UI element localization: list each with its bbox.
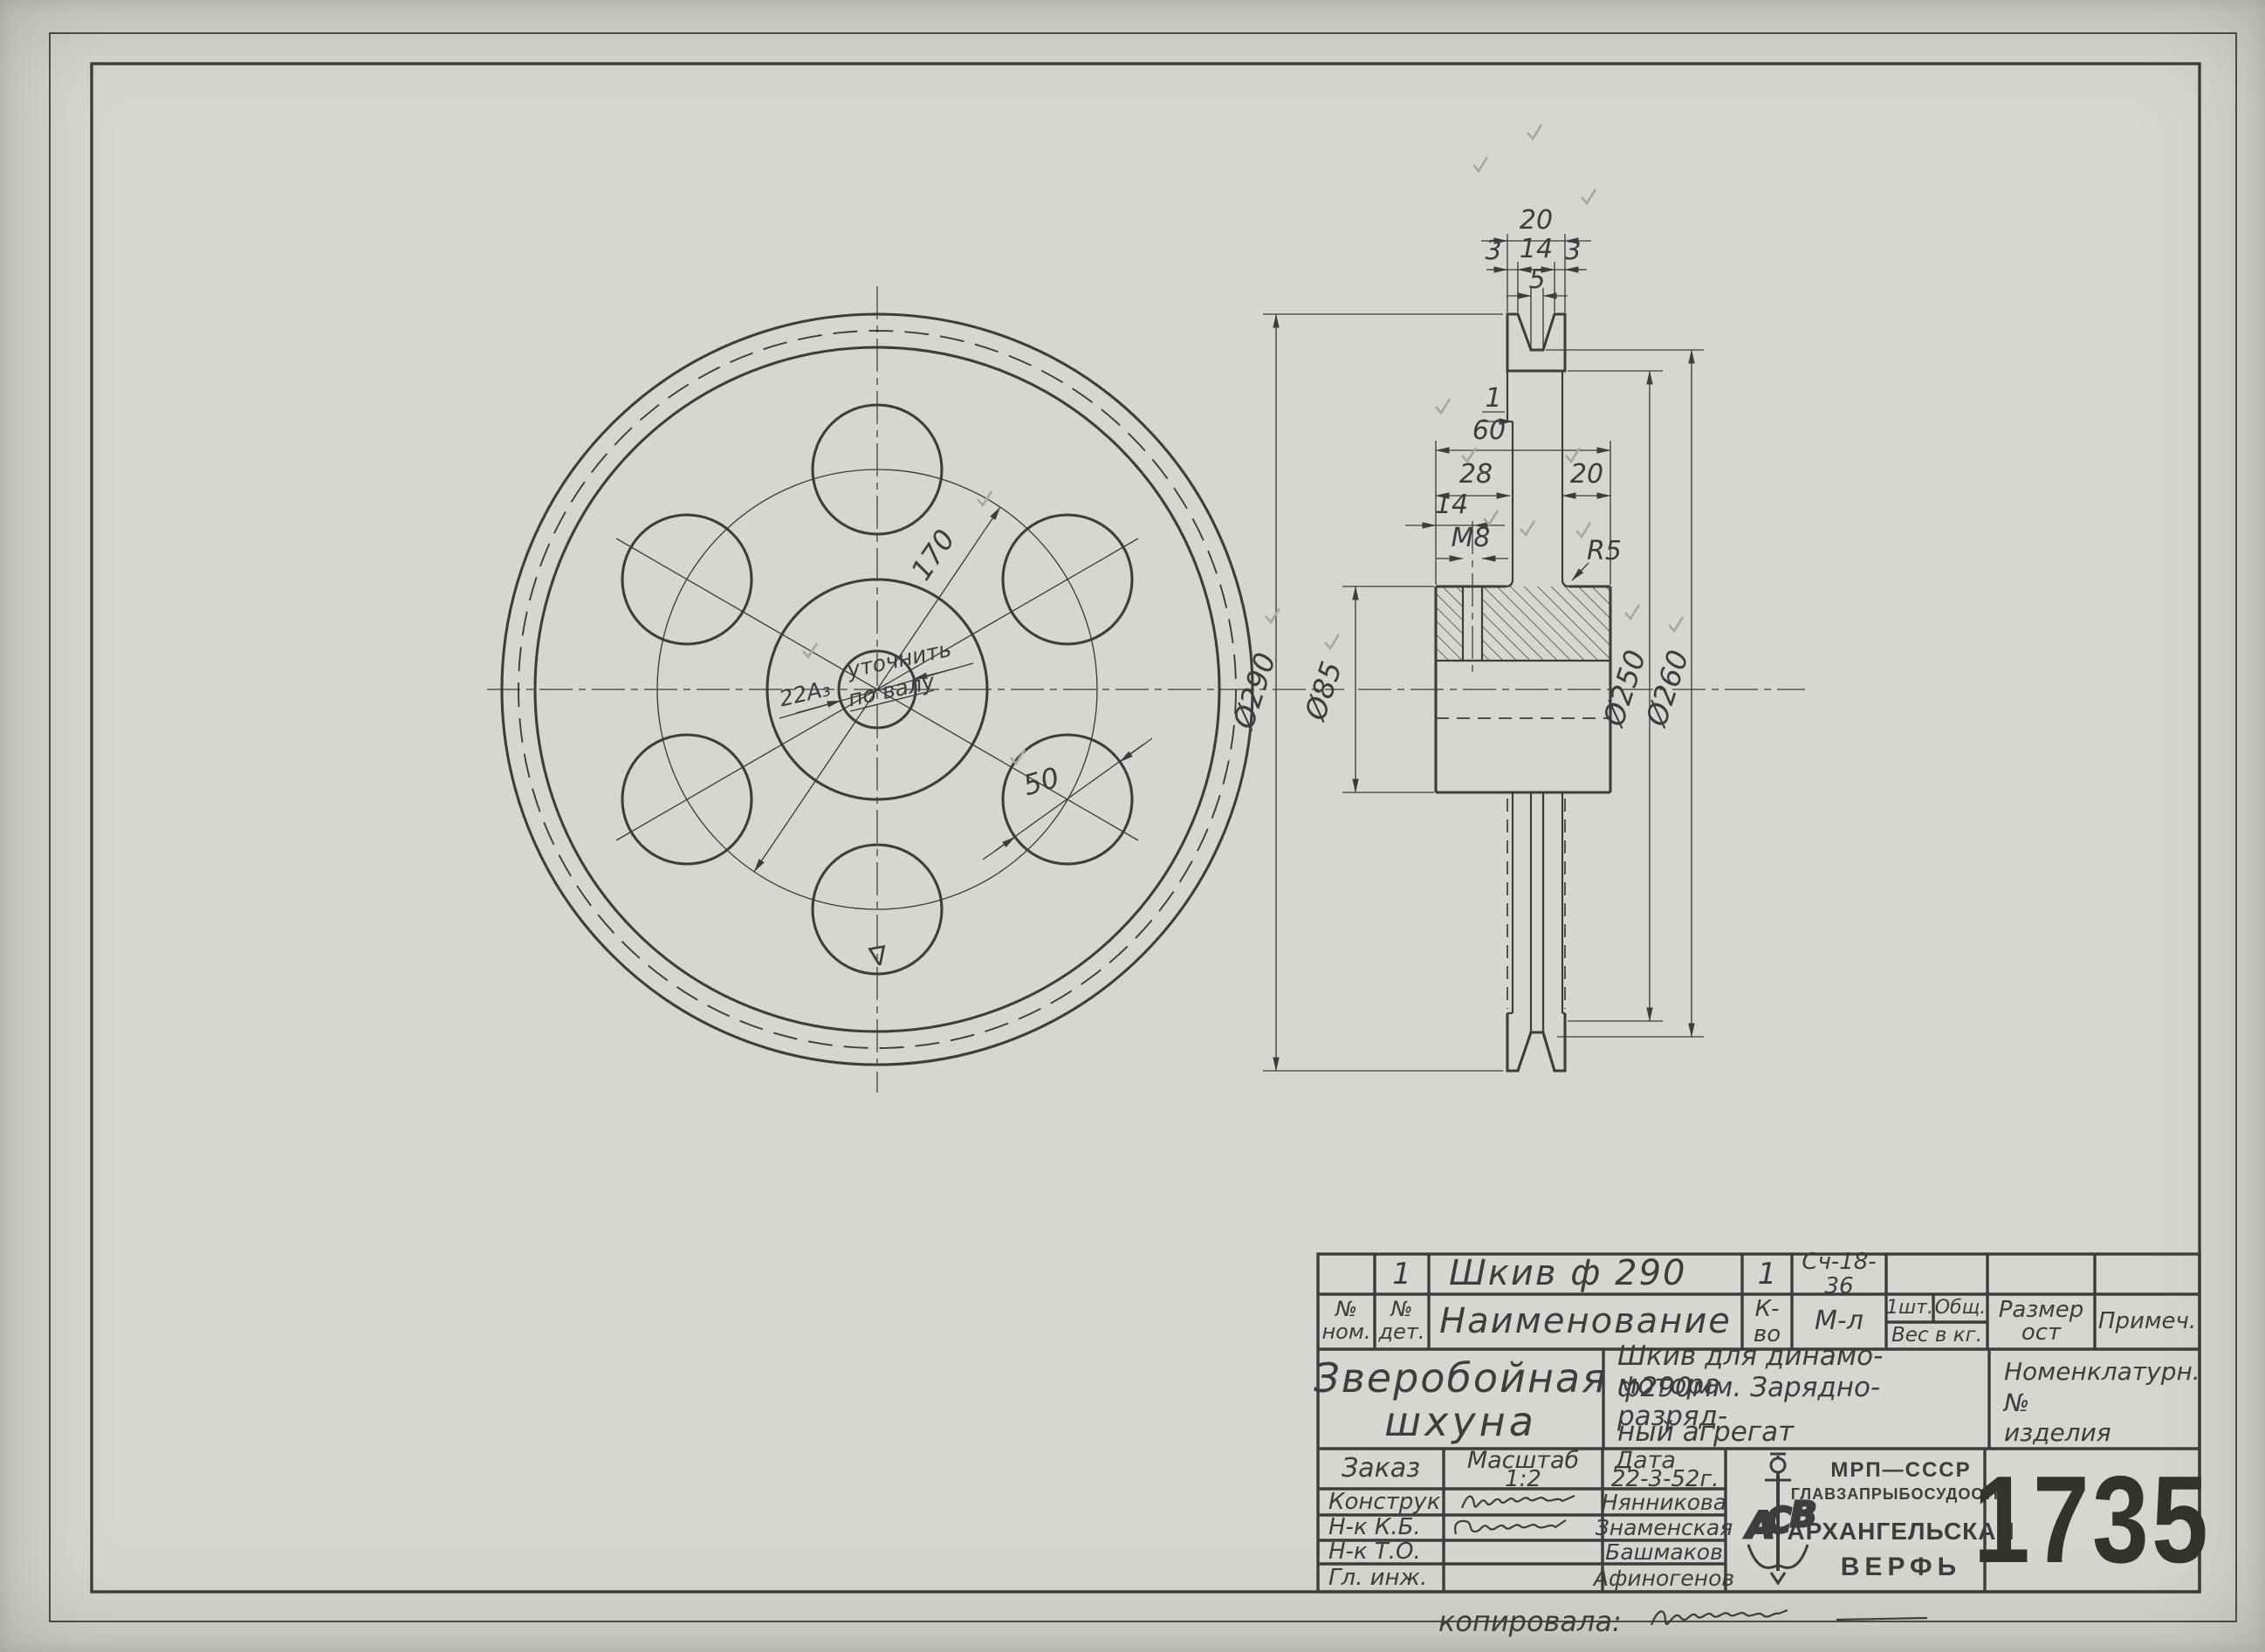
signature-nk-kb [1455, 1520, 1566, 1534]
description-line3: ный агрегат [1617, 1418, 1984, 1448]
dim-bore: 22А₃ [777, 675, 833, 712]
dim-web-offset: 1 [1485, 383, 1501, 414]
dim-hole-diameter: 50 [1019, 761, 1063, 803]
nomenclature-line3: изделия [2004, 1419, 2196, 1447]
order-label: Заказ [1318, 1449, 1444, 1489]
hdr-no-nom-1: № [1318, 1299, 1375, 1321]
dim-m8-offset: 14 [1435, 490, 1468, 520]
signer-name-2: Башмаков [1603, 1540, 1726, 1564]
signature-konstruk [1462, 1496, 1575, 1508]
row1-qty: 1 [1742, 1254, 1792, 1294]
dim-hub-right: 20 [1570, 459, 1603, 490]
signature-copied [1651, 1610, 1788, 1625]
hdr-no-det-2: дет. [1375, 1321, 1429, 1344]
surface-finish-mark: ∇ [866, 941, 890, 974]
signer-role-0: Конструк. [1328, 1489, 1444, 1515]
description-line2: ф290мм. Зарядно-разряд- [1617, 1387, 1984, 1418]
org-line4: ВЕРФЬ [1817, 1553, 1985, 1581]
date-value: 22-3-52г. [1611, 1470, 1726, 1489]
hdr-no-det-1: № [1375, 1299, 1429, 1321]
signer-name-0: Нянникова [1603, 1489, 1726, 1515]
project-line2: шхуна [1318, 1402, 1603, 1443]
project-line1: Зверобойная [1318, 1358, 1603, 1400]
side-view: 20 3 14 3 5 1 60 28 20 [1225, 205, 1805, 1071]
signer-role-3: Гл. инж. [1328, 1564, 1444, 1592]
hdr-total: Общ. [1933, 1294, 1987, 1322]
dim-groove-top: 14 [1520, 234, 1553, 264]
lower-exterior [1507, 792, 1565, 1071]
copied-by-label: копировала: [1438, 1606, 1648, 1637]
signer-role-2: Н-к Т.О. [1328, 1540, 1444, 1564]
dim-hub-length: 60 [1472, 415, 1506, 446]
signer-role-1: Н-к К.Б. [1328, 1515, 1444, 1540]
fillet-label: R5 [1587, 536, 1622, 566]
org-line2: ГЛАВЗАПРЫБОСУДОСТР. [1814, 1485, 1985, 1505]
org-line3: АРХАНГЕЛЬСКАЯ [1817, 1518, 1985, 1545]
hdr-note: Примеч. [2095, 1294, 2200, 1349]
hdr-size-1: Размер [1987, 1299, 2095, 1321]
signer-name-1: Знаменская [1603, 1515, 1726, 1540]
row1-material: Сч-18-36 [1792, 1254, 1886, 1294]
row1-det-no: 1 [1375, 1254, 1429, 1294]
thread-label: М8 [1452, 523, 1491, 553]
hdr-size-2: ост [1987, 1321, 2095, 1344]
drawing-number: 1735 [2004, 1449, 2180, 1592]
org-line1: МРП—СССР [1820, 1459, 1982, 1482]
hub-section [1436, 521, 1610, 792]
scale-value: 1:2 [1444, 1470, 1603, 1489]
dim-groove-edge-right: 3 [1564, 236, 1581, 266]
dim-rim-width: 20 [1520, 205, 1553, 236]
nomenclature-line2: № [2004, 1389, 2196, 1417]
dim-groove-edge-left: 3 [1485, 236, 1501, 266]
dia-hub-label: Ø85 [1297, 657, 1349, 726]
rim-section [1507, 314, 1565, 371]
web-section [1506, 371, 1569, 586]
dim-groove-bottom: 5 [1528, 264, 1545, 295]
nomenclature-line1: Номенклатурн. [2004, 1358, 2196, 1386]
front-view: 170 50 22А₃ уточнить по валу ∇ [487, 286, 1344, 1093]
signer-name-3: Афиногенов [1603, 1564, 1726, 1592]
drawing-sheet: 170 50 22А₃ уточнить по валу ∇ [0, 0, 2265, 1652]
row1-part-name: Шкив ф 290 [1449, 1254, 1742, 1294]
hdr-no-nom-2: ном. [1318, 1321, 1375, 1344]
hdr-per-piece: 1шт. [1886, 1294, 1933, 1322]
dim-hub-left: 28 [1459, 459, 1493, 490]
